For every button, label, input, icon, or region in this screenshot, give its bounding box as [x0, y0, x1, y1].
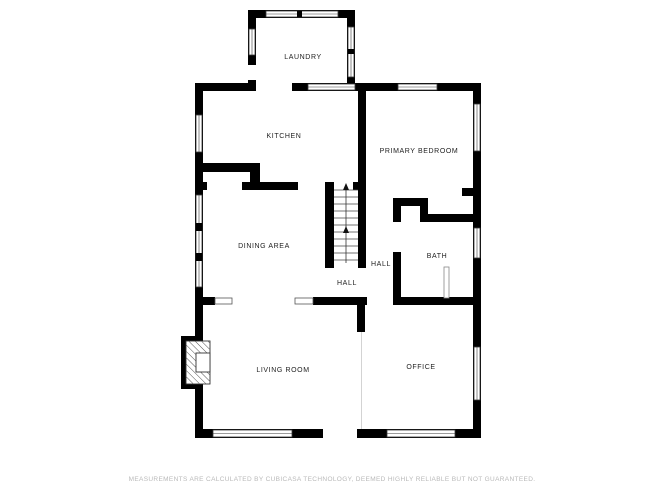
room-label-hall-upper: HALL [371, 261, 391, 268]
disclaimer-text: MEASUREMENTS ARE CALCULATED BY CUBICASA … [129, 476, 536, 483]
wall-segment [197, 297, 215, 305]
wall-segment [393, 297, 473, 305]
shower-glass-marker [444, 267, 449, 298]
room-label-hall-lower: HALL [337, 280, 357, 287]
window-marker [266, 11, 338, 17]
window-marker [398, 84, 437, 90]
windows [196, 11, 480, 437]
window-marker [474, 104, 480, 151]
wall-segment [357, 297, 365, 332]
window-marker [348, 27, 354, 77]
window-marker [249, 29, 255, 55]
room-label-office: OFFICE [406, 364, 435, 371]
wall-segment [420, 198, 428, 222]
stairs-direction-arrow [343, 183, 349, 190]
window-marker [474, 347, 480, 400]
room-label-dining-area: DINING AREA [238, 243, 290, 250]
stairs-icon [334, 183, 358, 263]
window-marker [213, 430, 292, 437]
window-marker [474, 228, 480, 258]
wall-segment [202, 163, 250, 172]
door-opening-marker [215, 298, 232, 304]
room-label-primary-bedroom: PRIMARY BEDROOM [380, 148, 459, 155]
fireplace-icon [181, 336, 210, 389]
stairs-direction-arrow [343, 226, 349, 233]
wall-segment [195, 182, 207, 190]
wall-segment [195, 83, 250, 91]
wall-segment [242, 182, 298, 190]
floor-plan: LAUNDRY KITCHEN PRIMARY BEDROOM DINING A… [0, 0, 665, 499]
window-marker [196, 115, 202, 152]
window-marker [387, 430, 455, 437]
wall-segment [462, 188, 474, 196]
room-label-living-room: LIVING ROOM [256, 367, 309, 374]
doors [215, 298, 362, 429]
wall-segment [358, 83, 366, 268]
walls [195, 10, 481, 438]
door-opening-marker [295, 298, 313, 304]
wall-segment [250, 163, 260, 182]
wall-segment [428, 214, 473, 222]
window-marker [308, 84, 355, 90]
room-label-bath: BATH [427, 253, 448, 260]
floor-plan-page: LAUNDRY KITCHEN PRIMARY BEDROOM DINING A… [0, 0, 665, 499]
window-marker [196, 195, 202, 287]
room-label-laundry: LAUNDRY [284, 54, 322, 61]
wall-segment [353, 182, 366, 190]
room-label-kitchen: KITCHEN [267, 133, 302, 140]
wall-segment [325, 182, 334, 268]
